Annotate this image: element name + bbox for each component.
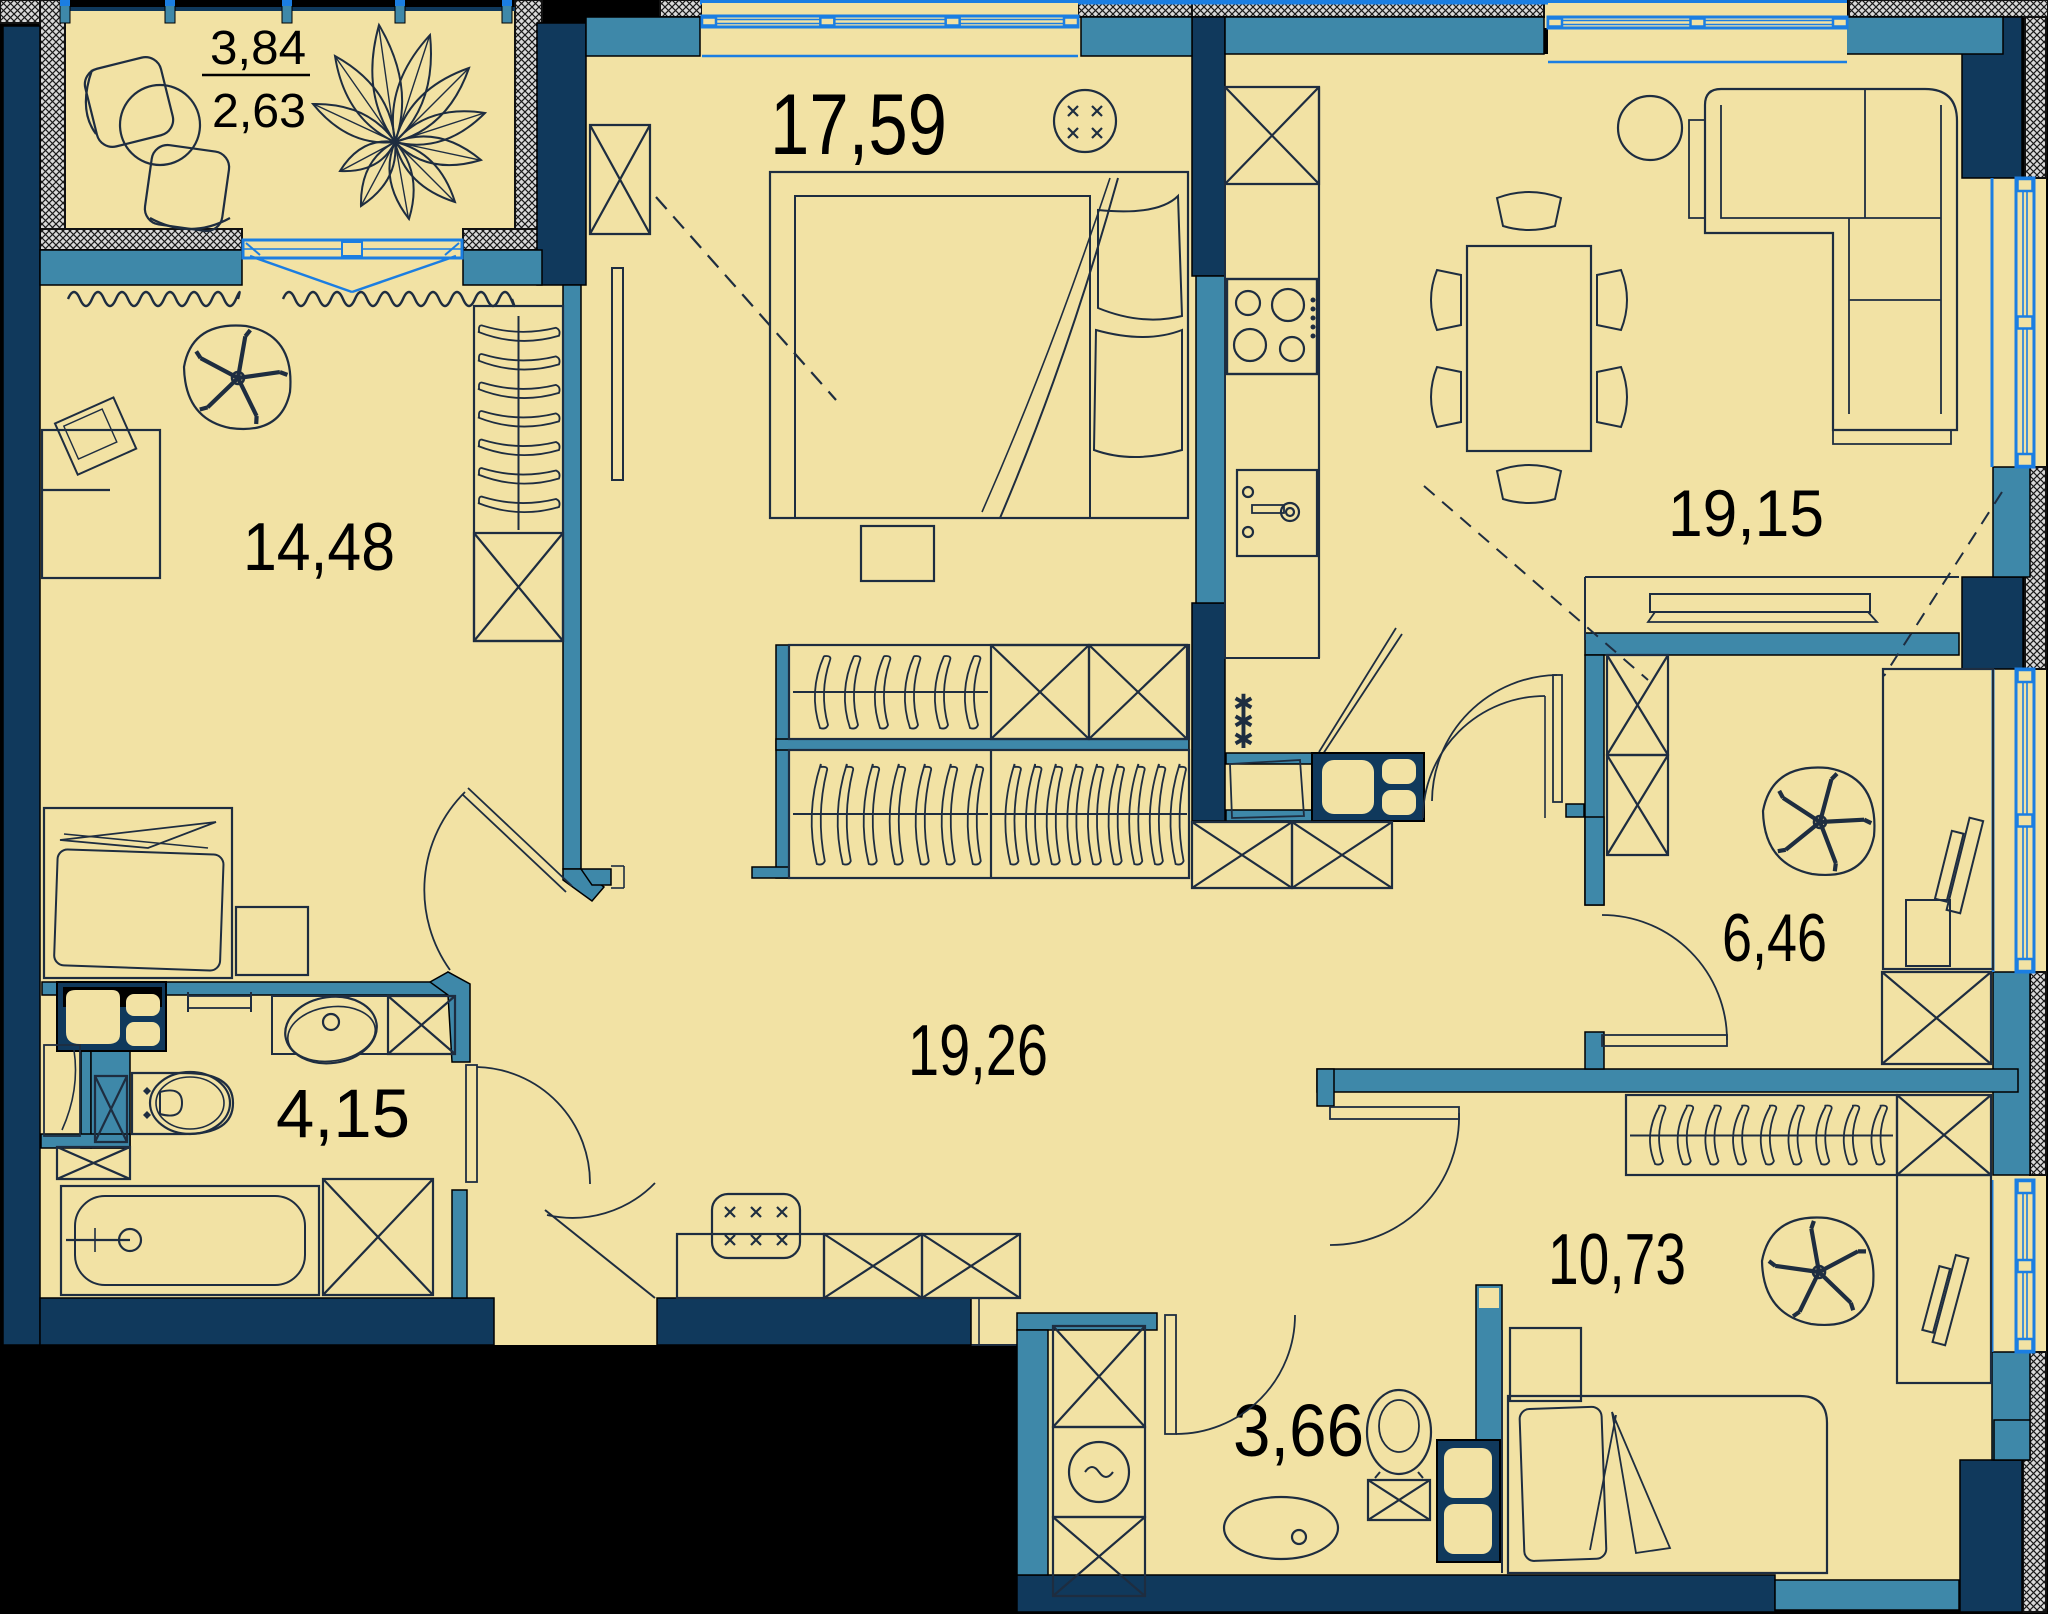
svg-text:17,59: 17,59 <box>770 77 947 173</box>
svg-text:19,26: 19,26 <box>908 1011 1048 1091</box>
svg-text:2,63: 2,63 <box>212 85 306 138</box>
svg-text:3,66: 3,66 <box>1233 1389 1364 1472</box>
svg-text:14,48: 14,48 <box>243 509 395 585</box>
svg-text:4,15: 4,15 <box>276 1075 410 1152</box>
svg-text:19,15: 19,15 <box>1668 476 1824 550</box>
svg-text:✱: ✱ <box>1233 726 1254 754</box>
svg-text:6,46: 6,46 <box>1722 900 1827 976</box>
svg-text:10,73: 10,73 <box>1548 1220 1686 1300</box>
svg-text:3,84: 3,84 <box>210 22 306 75</box>
